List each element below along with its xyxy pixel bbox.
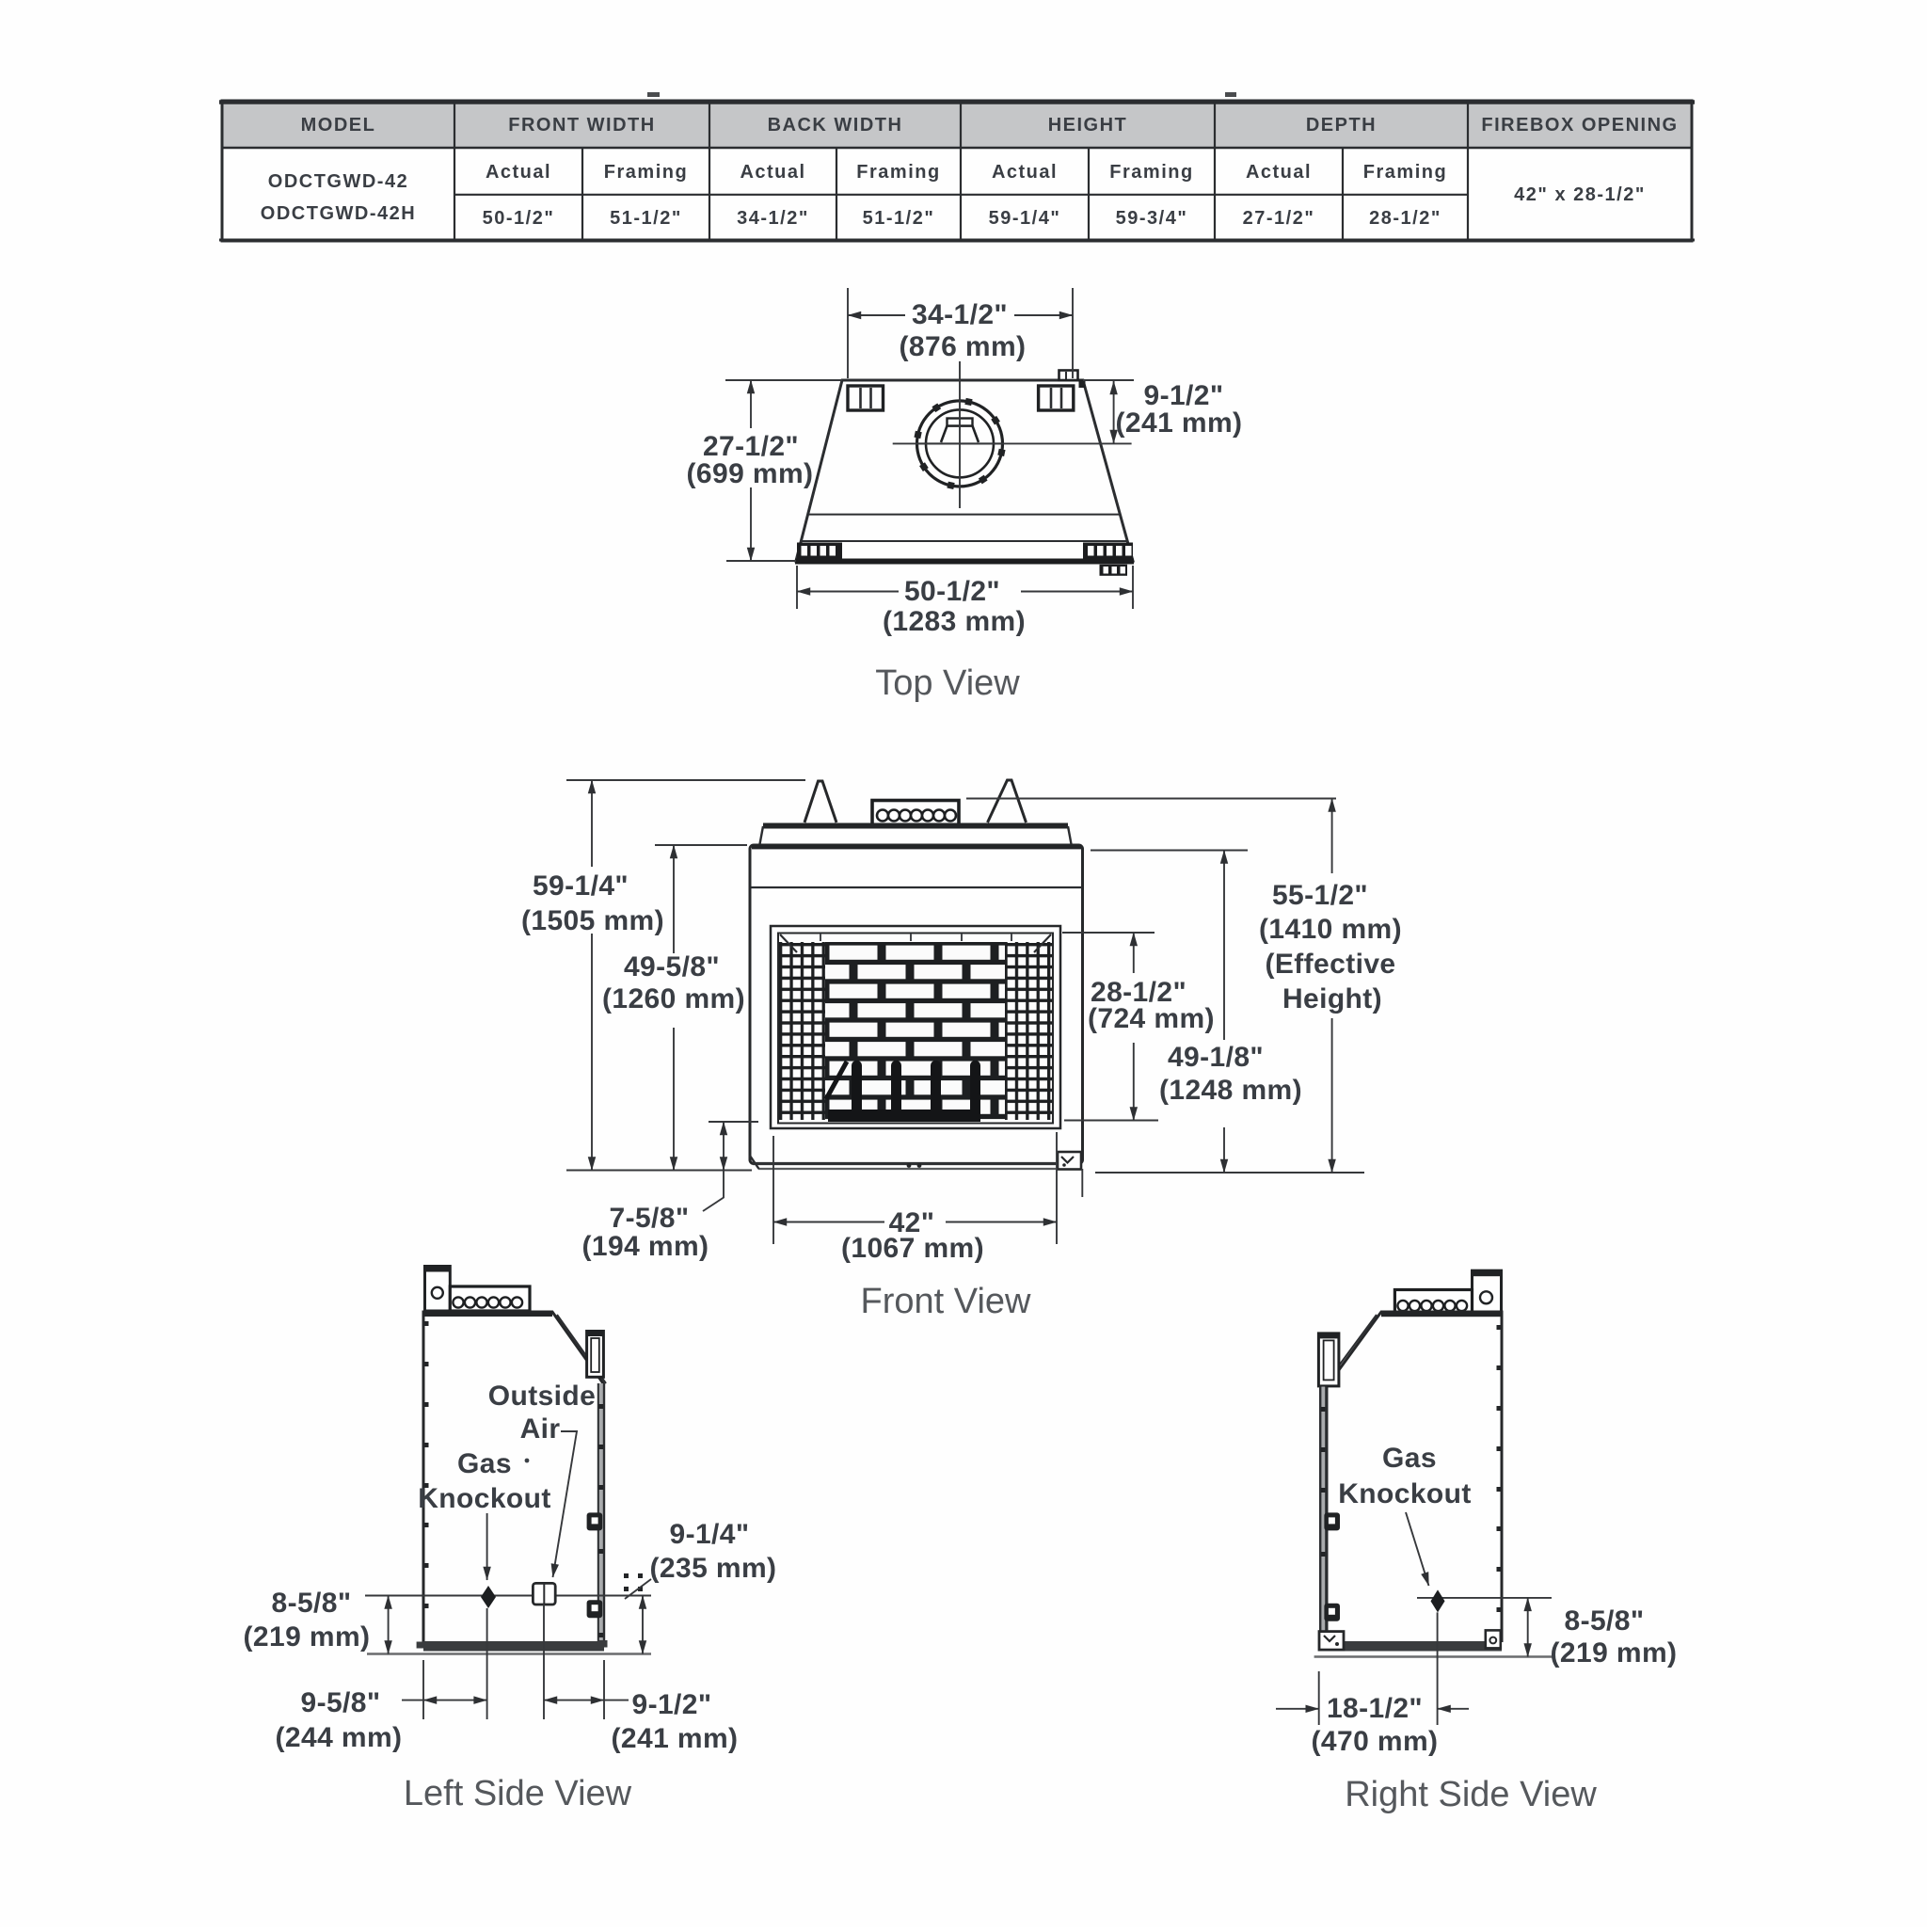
- svg-text:Front View: Front View: [861, 1282, 1031, 1321]
- svg-text:FRONT WIDTH: FRONT WIDTH: [508, 115, 655, 136]
- svg-text:(219 mm): (219 mm): [244, 1621, 371, 1653]
- svg-text:59-1/4": 59-1/4": [533, 870, 629, 902]
- svg-text:ODCTGWD-42: ODCTGWD-42: [268, 171, 408, 192]
- svg-text:(1283 mm): (1283 mm): [883, 606, 1026, 637]
- svg-text:Outside: Outside: [488, 1381, 596, 1412]
- svg-text:Knockout: Knockout: [1338, 1478, 1472, 1509]
- svg-text:7-5/8": 7-5/8": [609, 1203, 689, 1234]
- svg-text:8-5/8": 8-5/8": [1564, 1605, 1644, 1637]
- svg-text:8-5/8": 8-5/8": [271, 1588, 351, 1619]
- svg-text:Actual: Actual: [740, 162, 805, 183]
- svg-text:9-1/4": 9-1/4": [669, 1519, 749, 1550]
- svg-text:Gas: Gas: [1382, 1443, 1437, 1474]
- svg-text:(1410 mm): (1410 mm): [1259, 914, 1402, 945]
- svg-text:ODCTGWD-42H: ODCTGWD-42H: [261, 203, 416, 224]
- svg-text:Right Side View: Right Side View: [1345, 1775, 1597, 1814]
- svg-text:49-5/8": 49-5/8": [624, 951, 720, 982]
- svg-text:(876 mm): (876 mm): [900, 331, 1027, 362]
- svg-text:Framing: Framing: [1363, 162, 1447, 183]
- svg-text:(Effective: (Effective: [1265, 949, 1395, 980]
- svg-text:(1260 mm): (1260 mm): [602, 983, 745, 1014]
- svg-text:59-1/4": 59-1/4": [989, 208, 1061, 229]
- svg-text:9-1/2": 9-1/2": [631, 1689, 711, 1720]
- svg-text:49-1/8": 49-1/8": [1168, 1042, 1264, 1073]
- svg-text:Gas: Gas: [457, 1448, 512, 1479]
- svg-text:9-5/8": 9-5/8": [300, 1687, 380, 1718]
- svg-text:(194 mm): (194 mm): [582, 1231, 709, 1262]
- svg-text:Actual: Actual: [1246, 162, 1312, 183]
- svg-text:34-1/2": 34-1/2": [737, 208, 809, 229]
- svg-text:34-1/2": 34-1/2": [912, 299, 1008, 330]
- svg-text:50-1/2": 50-1/2": [483, 208, 555, 229]
- svg-text:(244 mm): (244 mm): [276, 1722, 403, 1753]
- svg-text:(241 mm): (241 mm): [612, 1723, 739, 1754]
- svg-text:(470 mm): (470 mm): [1312, 1726, 1439, 1757]
- svg-text:(235 mm): (235 mm): [650, 1553, 777, 1584]
- svg-text:(699 mm): (699 mm): [687, 458, 814, 489]
- svg-text:(241 mm): (241 mm): [1116, 407, 1243, 439]
- svg-text:HEIGHT: HEIGHT: [1048, 115, 1128, 136]
- svg-text:(1067 mm): (1067 mm): [841, 1233, 984, 1264]
- svg-text:FIREBOX OPENING: FIREBOX OPENING: [1481, 115, 1678, 136]
- svg-text:27-1/2": 27-1/2": [1243, 208, 1315, 229]
- svg-text:Framing: Framing: [1109, 162, 1193, 183]
- svg-text:Actual: Actual: [486, 162, 551, 183]
- svg-text:DEPTH: DEPTH: [1306, 115, 1377, 136]
- svg-text:(724 mm): (724 mm): [1088, 1003, 1215, 1034]
- svg-text:(219 mm): (219 mm): [1551, 1637, 1678, 1669]
- svg-text:Knockout: Knockout: [418, 1483, 551, 1514]
- svg-text:51-1/2": 51-1/2": [863, 208, 935, 229]
- svg-text:28-1/2": 28-1/2": [1369, 208, 1441, 229]
- svg-text:MODEL: MODEL: [301, 115, 376, 136]
- svg-text:Left Side View: Left Side View: [404, 1774, 632, 1813]
- svg-text:Air: Air: [520, 1413, 561, 1445]
- svg-text:50-1/2": 50-1/2": [904, 576, 1000, 607]
- svg-text:Framing: Framing: [856, 162, 940, 183]
- svg-text:59-3/4": 59-3/4": [1116, 208, 1188, 229]
- svg-text:Actual: Actual: [992, 162, 1058, 183]
- svg-text:(1248 mm): (1248 mm): [1159, 1075, 1302, 1106]
- svg-text:55-1/2": 55-1/2": [1272, 880, 1368, 911]
- svg-text:Height): Height): [1282, 983, 1382, 1014]
- svg-text:(1505 mm): (1505 mm): [521, 905, 664, 936]
- svg-text:18-1/2": 18-1/2": [1327, 1693, 1423, 1724]
- svg-text:42" x 28-1/2": 42" x 28-1/2": [1514, 184, 1646, 205]
- svg-text:Framing: Framing: [604, 162, 688, 183]
- svg-text:BACK WIDTH: BACK WIDTH: [768, 115, 903, 136]
- svg-text:Top View: Top View: [875, 663, 1020, 703]
- svg-text:51-1/2": 51-1/2": [610, 208, 682, 229]
